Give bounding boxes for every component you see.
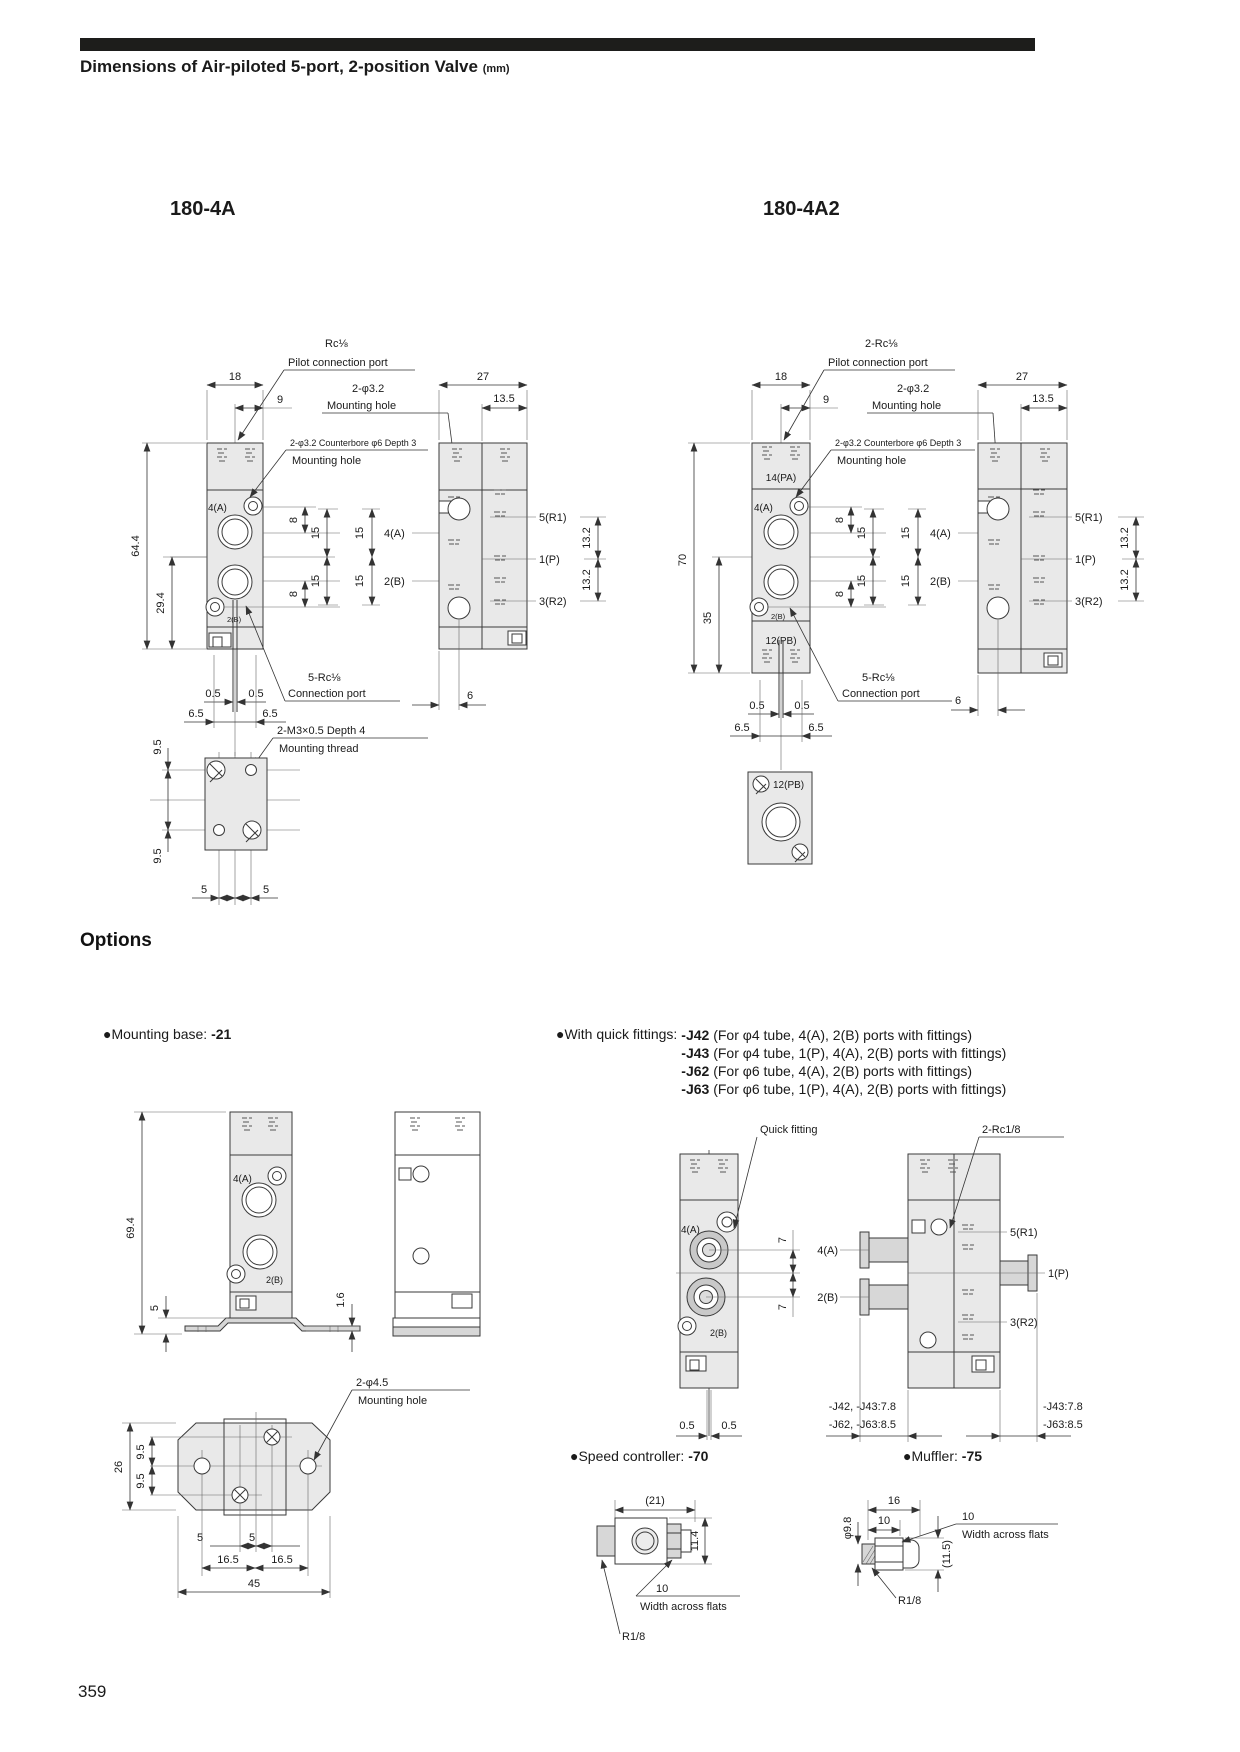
callout: Mounting thread <box>279 743 359 755</box>
callout: 2-Rc⅛ <box>865 338 898 350</box>
valve-180-4a-side-view: 27 13.5 5(R1) 1(P) 3(R2) 13.2 13.2 6 <box>412 371 606 710</box>
dim-label: 18 <box>775 371 787 383</box>
callout: Width across flats <box>640 1601 727 1613</box>
port-label: 2(B) <box>710 1328 727 1338</box>
callout: Width across flats <box>962 1529 1049 1541</box>
dim-label: 5 <box>263 884 269 896</box>
dim-label: (11.5) <box>941 1540 953 1568</box>
callout: 2-φ3.2 <box>897 383 929 395</box>
dim-label: 0.5 <box>205 688 220 700</box>
dim-label: 10 <box>656 1583 668 1595</box>
option-quick-fittings: ●With quick fittings: -J42 (For φ4 tube,… <box>556 1026 1006 1098</box>
dim-label: 35 <box>702 612 714 624</box>
dim-label: 15 <box>310 575 322 587</box>
dim-label: 16.5 <box>217 1554 238 1566</box>
mounting-base-front-view: 4(A) 2(B) 69.4 5 1.6 <box>125 1112 360 1352</box>
dim-label: 15 <box>900 575 912 587</box>
quick-fitting-side-view: 4(A) 2(B) 1(P) 5(R1) 3(R2) 2-Rc1/8 -J42,… <box>817 1124 1083 1442</box>
port-label: 12(PB) <box>773 780 804 791</box>
port-label: 5(R1) <box>1075 512 1103 524</box>
dim-label: 29.4 <box>155 592 167 613</box>
callout: 5-Rc⅛ <box>862 672 895 684</box>
dim-label: 15 <box>354 527 366 539</box>
callout: 2-φ3.2 Counterbore φ6 Depth 3 <box>290 438 416 448</box>
callout: Connection port <box>842 688 920 700</box>
port-label: 5(R1) <box>1010 1227 1038 1239</box>
dim-label: 15 <box>856 527 868 539</box>
dim-label: 18 <box>229 371 241 383</box>
callout: Quick fitting <box>760 1124 817 1136</box>
dim-label: 11.4 <box>689 1531 701 1552</box>
port-label: 1(P) <box>1075 554 1096 566</box>
dim-label: 1.6 <box>335 1292 347 1307</box>
technical-drawings: 4(A) 2(B) 18 9 Rc⅛ Pilot connection port… <box>0 0 1240 1752</box>
port-label: 1(P) <box>539 554 560 566</box>
dim-label: 64.4 <box>130 535 142 556</box>
dim-label: 9.5 <box>152 739 164 754</box>
dim-label: 10 <box>878 1515 890 1527</box>
port-label: 2(B) <box>817 1292 838 1304</box>
dim-label: 5 <box>197 1532 203 1544</box>
fitting-code: -J62 <box>681 1063 709 1079</box>
port-label: 1(P) <box>1048 1268 1069 1280</box>
fitting-desc: (For φ6 tube, 1(P), 4(A), 2(B) ports wit… <box>709 1081 1006 1097</box>
port-label: 2(B) <box>266 1275 283 1285</box>
fitting-code: -J63 <box>681 1081 709 1097</box>
port-label: 4(A) <box>817 1245 838 1257</box>
callout: Rc⅛ <box>325 338 348 350</box>
port-label: 4(A) <box>754 503 773 514</box>
dim-label: 0.5 <box>679 1420 694 1432</box>
port-label: 2(B) <box>227 615 242 624</box>
catalog-page: Dimensions of Air-piloted 5-port, 2-posi… <box>0 0 1240 1752</box>
muffler-code: -75 <box>962 1448 982 1464</box>
speed-controller-code: -70 <box>688 1448 708 1464</box>
dim-label: 7 <box>777 1304 789 1310</box>
mounting-base-plate-view: 26 9.5 9.5 5 5 16.5 16.5 45 2-φ4.5 Mount… <box>113 1377 470 1598</box>
dim-label: 15 <box>900 527 912 539</box>
callout: Mounting hole <box>872 400 941 412</box>
quick-fittings-label-text: With quick fittings: <box>564 1026 677 1042</box>
port-label: 2(B) <box>930 576 951 588</box>
valve-180-4a2-side-view: 27 13.5 5(R1) 1(P) 3(R2) 13.2 13.2 6 <box>951 371 1144 716</box>
valve-180-4a2-bottom-view: 12(PB) <box>748 772 812 864</box>
fitting-desc: (For φ6 tube, 4(A), 2(B) ports with fitt… <box>709 1063 972 1079</box>
port-label: 4(A) <box>233 1174 252 1185</box>
callout: R1/8 <box>898 1595 921 1607</box>
port-label: 3(R2) <box>1075 596 1103 608</box>
fitting-item: -J42 (For φ4 tube, 4(A), 2(B) ports with… <box>681 1026 1006 1044</box>
dim-label: 9.5 <box>152 848 164 863</box>
dim-label: 8 <box>834 591 846 597</box>
dim-label: φ9.8 <box>842 1517 854 1539</box>
port-label: 3(R2) <box>539 596 567 608</box>
dim-label: 45 <box>248 1578 260 1590</box>
callout: 2-φ3.2 Counterbore φ6 Depth 3 <box>835 438 961 448</box>
callout: R1/8 <box>622 1631 645 1643</box>
dim-label: 0.5 <box>721 1420 736 1432</box>
callout: 2-φ4.5 <box>356 1377 388 1389</box>
dim-label: 15 <box>856 575 868 587</box>
dim-label: 16.5 <box>271 1554 292 1566</box>
quick-fitting-front-view: 4(A) 2(B) Quick fitting 7 7 0.5 0.5 <box>676 1124 817 1440</box>
dim-label: 9 <box>823 394 829 406</box>
option-muffler: ●Muffler: -75 <box>903 1448 982 1464</box>
fitting-item: -J63 (For φ6 tube, 1(P), 4(A), 2(B) port… <box>681 1080 1006 1098</box>
callout: 2-Rc1/8 <box>982 1124 1021 1136</box>
dim-label: 16 <box>888 1495 900 1507</box>
dim-label: 7 <box>777 1237 789 1243</box>
fitting-code: -J43 <box>681 1045 709 1061</box>
port-label: 2(B) <box>384 576 405 588</box>
mounting-base-side-view <box>393 1112 480 1336</box>
fitting-code: -J42 <box>681 1027 709 1043</box>
dim-label: 5 <box>149 1305 161 1311</box>
dim-label: 5 <box>201 884 207 896</box>
dim-label: 6.5 <box>262 708 277 720</box>
valve-180-4a-bottom-view: 9.5 9.5 5 5 <box>150 739 300 905</box>
dim-label: 6.5 <box>808 722 823 734</box>
dim-label: 27 <box>477 371 489 383</box>
port-label: 3(R2) <box>1010 1317 1038 1329</box>
port-label: 2(B) <box>771 612 786 621</box>
dim-label: 13.5 <box>493 393 514 405</box>
dim-label: 70 <box>677 554 689 566</box>
valve-180-4a-left-dimensions: 64.4 29.4 <box>130 443 207 649</box>
dim-label: 13.2 <box>1119 527 1131 548</box>
port-label: 4(A) <box>384 528 405 540</box>
port-label: 4(A) <box>930 528 951 540</box>
port-label: 5(R1) <box>539 512 567 524</box>
mounting-base-code: -21 <box>211 1026 231 1042</box>
dim-label: 13.2 <box>1119 569 1131 590</box>
dim-label: 10 <box>962 1511 974 1523</box>
muffler-label: Muffler: <box>911 1448 961 1464</box>
dim-label: 15 <box>310 527 322 539</box>
options-heading: Options <box>80 930 152 952</box>
muffler-drawing: 16 10 φ9.8 (11.5) 10 Width across flats … <box>842 1495 1058 1607</box>
option-speed-controller: ●Speed controller: -70 <box>570 1448 708 1464</box>
callout: Mounting hole <box>292 455 361 467</box>
dim-label: 8 <box>288 517 300 523</box>
fitting-item: -J43 (For φ4 tube, 1(P), 4(A), 2(B) port… <box>681 1044 1006 1062</box>
option-mounting-base: ●Mounting base: -21 <box>103 1026 231 1042</box>
dim-label: 13.2 <box>581 527 593 548</box>
mounting-base-label: Mounting base: <box>111 1026 211 1042</box>
callout: 2-φ3.2 <box>352 383 384 395</box>
dim-label: (21) <box>645 1495 665 1507</box>
dim-label: 15 <box>354 575 366 587</box>
dim-label: 6 <box>467 690 473 702</box>
fitting-item: -J62 (For φ6 tube, 4(A), 2(B) ports with… <box>681 1062 1006 1080</box>
fitting-desc: (For φ4 tube, 1(P), 4(A), 2(B) ports wit… <box>709 1045 1006 1061</box>
dim-label: -J63:8.5 <box>1043 1419 1083 1431</box>
quick-fittings-list: -J42 (For φ4 tube, 4(A), 2(B) ports with… <box>681 1026 1006 1098</box>
port-label: 12(PB) <box>765 636 796 647</box>
port-label: 4(A) <box>208 503 227 514</box>
dim-label: 8 <box>834 517 846 523</box>
dim-label: 6 <box>955 695 961 707</box>
dim-label: 9.5 <box>135 1444 147 1459</box>
dim-label: -J42, -J43:7.8 <box>829 1401 896 1413</box>
port-label: 4(A) <box>681 1225 700 1236</box>
dim-label: 6.5 <box>734 722 749 734</box>
port-label: 14(PA) <box>766 473 796 484</box>
valve-180-4a2-left-dimensions: 70 35 <box>677 443 750 673</box>
dim-label: -J62, -J63:8.5 <box>829 1419 896 1431</box>
dim-label: 8 <box>288 591 300 597</box>
dim-label: 13.5 <box>1032 393 1053 405</box>
speed-controller-label: Speed controller: <box>578 1448 688 1464</box>
dim-label: 27 <box>1016 371 1028 383</box>
speed-controller-drawing: (21) 11.4 10 Width across flats R1/8 <box>597 1495 740 1643</box>
dim-label: 9 <box>277 394 283 406</box>
callout: Mounting hole <box>837 455 906 467</box>
callout: Mounting hole <box>358 1395 427 1407</box>
callout: Pilot connection port <box>288 357 388 369</box>
dim-label: 26 <box>113 1461 125 1473</box>
callout: Pilot connection port <box>828 357 928 369</box>
dim-label: 5 <box>249 1532 255 1544</box>
dim-label: 9.5 <box>135 1473 147 1488</box>
quick-fittings-label: ●With quick fittings: <box>556 1026 677 1098</box>
dim-label: 6.5 <box>188 708 203 720</box>
dim-label: -J43:7.8 <box>1043 1401 1083 1413</box>
callout: 5-Rc⅛ <box>308 672 341 684</box>
dim-label: 13.2 <box>581 569 593 590</box>
fitting-desc: (For φ4 tube, 4(A), 2(B) ports with fitt… <box>709 1027 972 1043</box>
dim-label: 69.4 <box>125 1217 137 1238</box>
callout: Mounting hole <box>327 400 396 412</box>
page-number: 359 <box>78 1682 106 1702</box>
dim-label: 0.5 <box>749 700 764 712</box>
callout: 2-M3×0.5 Depth 4 <box>277 725 365 737</box>
callout: Connection port <box>288 688 366 700</box>
